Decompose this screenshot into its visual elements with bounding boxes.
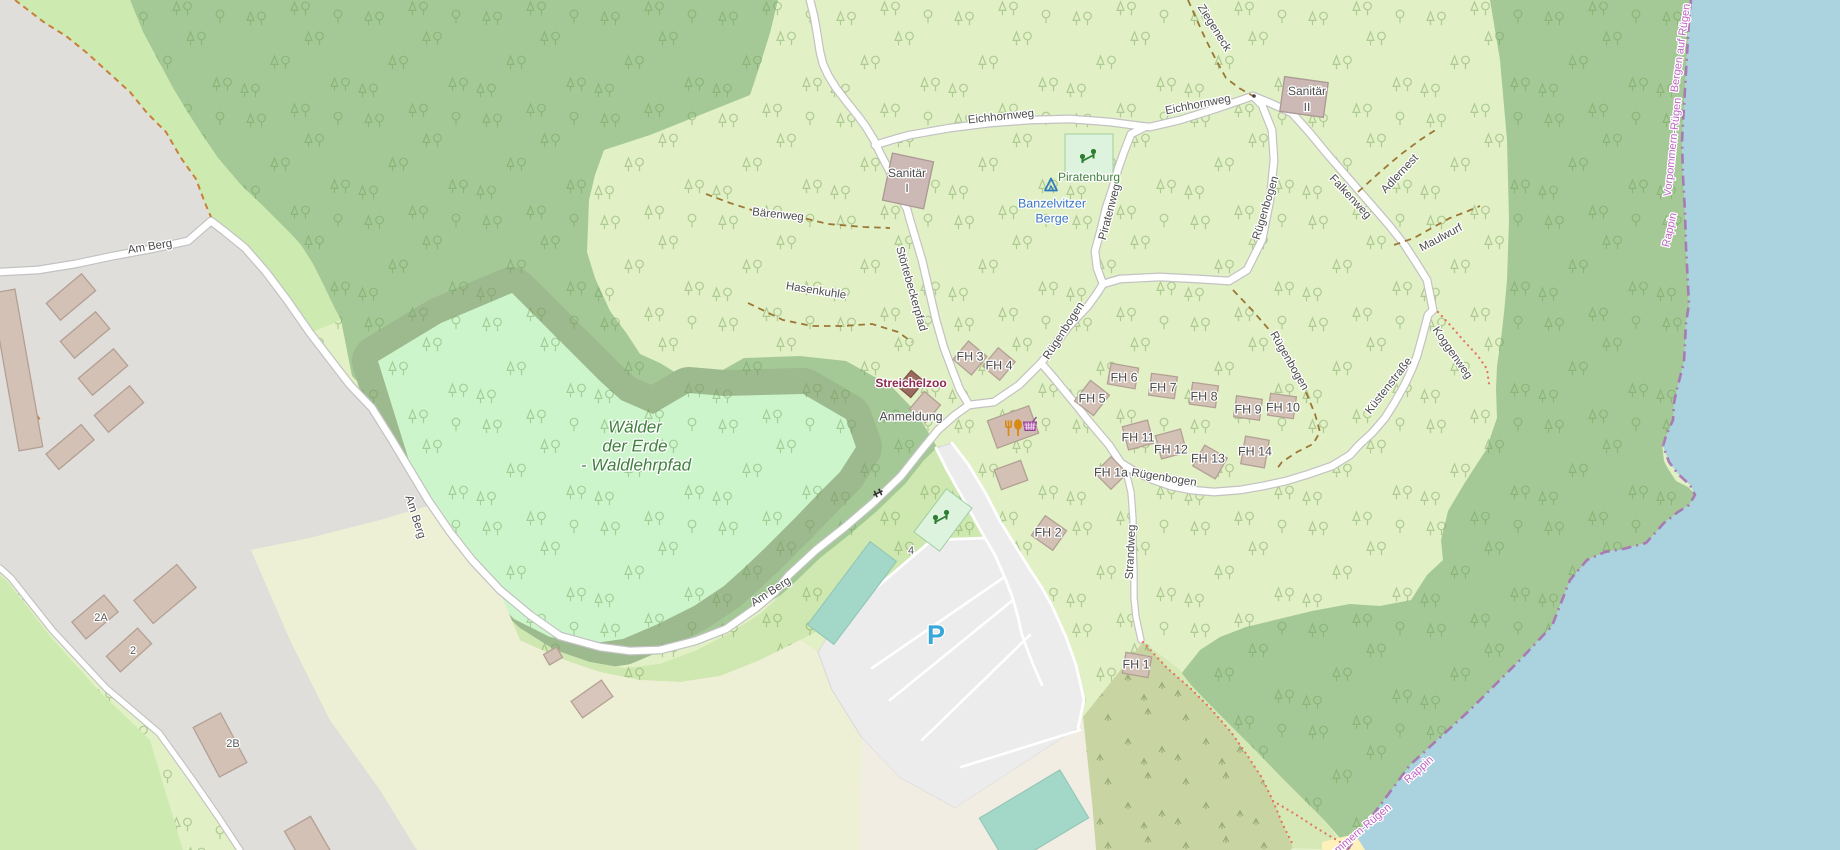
svg-text:FH 8: FH 8 (1190, 389, 1217, 403)
svg-text:FH 13: FH 13 (1191, 451, 1225, 465)
svg-text:- Waldlehrpfad: - Waldlehrpfad (581, 455, 692, 474)
svg-text:Anmeldung: Anmeldung (879, 409, 942, 423)
svg-text:Sanitär: Sanitär (888, 166, 926, 180)
svg-text:FH 10: FH 10 (1266, 400, 1300, 414)
svg-text:Sanitär: Sanitär (1288, 84, 1326, 98)
svg-text:2: 2 (130, 645, 136, 657)
svg-text:FH 12: FH 12 (1154, 442, 1188, 456)
svg-text:FH 7: FH 7 (1149, 380, 1176, 394)
svg-text:4: 4 (908, 545, 914, 557)
svg-text:FH 5: FH 5 (1078, 391, 1105, 405)
svg-text:Streichelzoo: Streichelzoo (875, 376, 946, 390)
svg-text:FH 1: FH 1 (1122, 657, 1149, 671)
svg-text:I: I (905, 181, 908, 195)
svg-text:FH 11: FH 11 (1121, 430, 1154, 444)
svg-text:Banzelvitzer: Banzelvitzer (1018, 196, 1086, 210)
svg-text:FH 3: FH 3 (956, 349, 983, 363)
svg-text:2A: 2A (94, 612, 108, 624)
svg-text:FH 4: FH 4 (985, 358, 1012, 372)
svg-text:II: II (1304, 100, 1311, 114)
svg-text:Wälder: Wälder (608, 417, 663, 436)
svg-text:FH 9: FH 9 (1234, 402, 1261, 416)
svg-text:2B: 2B (226, 738, 239, 750)
svg-text:Berge: Berge (1035, 211, 1068, 225)
svg-text:FH 6: FH 6 (1110, 370, 1137, 384)
svg-text:FH 1a: FH 1a (1094, 465, 1128, 479)
svg-text:FH 2: FH 2 (1034, 525, 1061, 539)
svg-text:FH 14: FH 14 (1238, 444, 1272, 458)
svg-text:P: P (927, 620, 945, 650)
svg-text:Piratenburg: Piratenburg (1058, 170, 1120, 184)
svg-text:der Erde: der Erde (602, 436, 667, 455)
